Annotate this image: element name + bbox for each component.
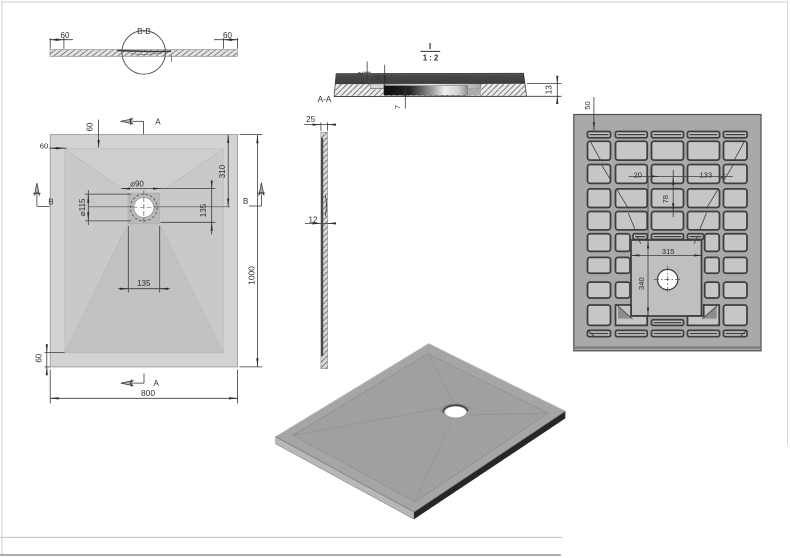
svg-text:4: 4	[373, 75, 382, 79]
svg-text:⌀90: ⌀90	[130, 180, 144, 189]
svg-text:50: 50	[583, 101, 592, 109]
svg-text:135: 135	[137, 279, 151, 288]
svg-text:A-A: A-A	[318, 95, 332, 104]
svg-text:B: B	[48, 197, 53, 206]
svg-text:1 : 2: 1 : 2	[423, 54, 439, 63]
svg-text:1000: 1000	[247, 266, 257, 285]
svg-text:12: 12	[309, 215, 318, 224]
svg-text:60: 60	[40, 141, 48, 150]
svg-text:B-B: B-B	[137, 27, 151, 36]
svg-text:20: 20	[634, 171, 642, 180]
svg-text:A: A	[155, 117, 161, 126]
svg-text:7: 7	[393, 105, 402, 109]
svg-text:A: A	[154, 379, 160, 388]
svg-text:60: 60	[223, 31, 232, 40]
svg-text:60: 60	[61, 31, 70, 40]
svg-text:800: 800	[141, 388, 155, 398]
svg-text:25: 25	[306, 115, 315, 124]
svg-text:133: 133	[699, 170, 712, 179]
svg-text:340: 340	[637, 277, 646, 290]
svg-text:60: 60	[86, 122, 95, 131]
svg-text:60: 60	[35, 353, 44, 362]
svg-text:⌀115: ⌀115	[78, 198, 87, 216]
svg-text:78: 78	[661, 195, 670, 203]
svg-text:13: 13	[545, 85, 554, 94]
svg-text:I: I	[429, 41, 431, 51]
svg-text:135: 135	[199, 203, 208, 217]
svg-text:310: 310	[218, 164, 227, 178]
svg-text:B: B	[243, 197, 248, 206]
svg-text:315: 315	[662, 247, 675, 256]
